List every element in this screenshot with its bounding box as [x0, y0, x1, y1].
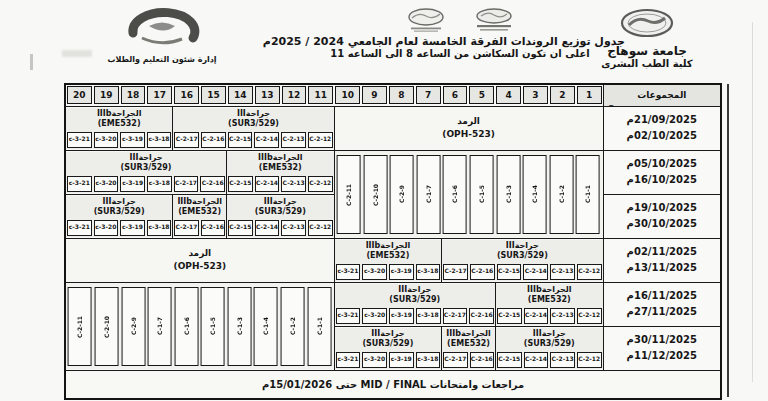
date-from: 16/11/2025م	[604, 288, 721, 304]
group-code: C-2-12	[577, 264, 602, 280]
course-title: جراحةIII	[237, 109, 270, 119]
table-header-row: المجموعات 123456789101112131415161718192…	[65, 84, 721, 106]
group-code: C-2-16	[201, 132, 226, 148]
course-title: جراحةIII	[533, 329, 566, 339]
group-code: C-2-12	[577, 308, 602, 324]
exams-note-cell: مراجعات وامتحانات MID / FINAL حتى 15/01/…	[65, 370, 721, 399]
group-number: 14	[228, 86, 253, 104]
date-from: 02/11/2025م	[604, 244, 721, 260]
exams-row: مراجعات وامتحانات MID / FINAL حتى 15/01/…	[65, 370, 721, 399]
group-number: 15	[201, 86, 226, 104]
accreditation-logos	[295, 8, 625, 33]
ophthalmology-block: الرمد (OPH-523)	[65, 238, 334, 282]
group-number: 6	[443, 86, 468, 104]
group-number: 10	[335, 86, 360, 104]
group-number: 11	[308, 86, 333, 104]
groups-header-cell: المجموعات	[603, 84, 721, 106]
clinic-code: C-1-7	[417, 155, 441, 234]
group-codes-strip: C-2-12C-2-13C-2-14C-2-15	[227, 219, 334, 237]
group-code: c-3-21	[336, 352, 361, 368]
schedule-row-2: 05/10/2025م 16/10/2025م C-1-1C-1-2C-1-4C…	[65, 150, 721, 194]
date-from: 30/11/2025م	[604, 332, 721, 348]
course-code: (EME532)	[528, 295, 571, 305]
clinic-code: C-2-9	[122, 287, 146, 366]
group-codes-strip: c-3-18c-3-19c-3-20c-3-21	[66, 131, 172, 149]
group-code: C-2-14	[254, 132, 279, 148]
group-code: c-3-18	[147, 176, 172, 192]
group-code: C-2-16	[469, 308, 494, 324]
clinic-groups-block: C-1-1C-1-2C-1-4C-1-3C-1-5C-1-6C-1-7C-2-9…	[334, 150, 603, 238]
course-code: (OPH-523)	[174, 260, 227, 273]
group-code: c-3-19	[389, 264, 414, 280]
accreditation-emblem-icon	[473, 8, 515, 33]
department-name: إدارة شئون التعليم والطلاب	[92, 55, 232, 64]
date-from: 21/09/2025م	[604, 112, 721, 128]
group-code: C-2-15	[497, 308, 522, 324]
scan-edge-line	[752, 22, 753, 382]
course-title: الرمد	[457, 115, 480, 128]
course-code: (SUR3/529)	[121, 163, 172, 173]
surgery-block: جراحةIII (SUR3/529) C-2-16C-2-17c-3-18c-…	[65, 150, 227, 194]
group-code: C-2-17	[174, 132, 199, 148]
group-code: c-3-18	[147, 132, 172, 148]
group-code: c-3-18	[416, 308, 441, 324]
group-code: c-3-20	[94, 132, 119, 148]
course-title: جراحةIII	[371, 329, 404, 339]
date-range-cell: 05/10/2025م 16/10/2025م	[603, 150, 721, 194]
group-code: C-2-14	[523, 264, 548, 280]
group-numbers-strip: 1234567891011121314151617181920	[66, 85, 603, 105]
group-codes-strip: C-2-12C-2-13C-2-14C-2-15	[227, 175, 334, 193]
group-code: c-3-21	[67, 220, 92, 236]
group-code: C-2-16	[470, 352, 494, 368]
group-code: C-2-12	[308, 220, 333, 236]
group-code: c-3-18	[416, 352, 441, 368]
group-codes-strip: C-2-16C-2-17c-3-18c-3-19c-3-20c-3-21	[335, 307, 495, 325]
clinic-codes-strip: C-1-1C-1-2C-1-4C-1-3C-1-5C-1-6C-1-7C-2-9…	[66, 283, 334, 369]
group-number: 8	[389, 86, 414, 104]
group-code: C-2-14	[524, 352, 549, 368]
clinic-code: C-1-1	[308, 287, 332, 366]
date-range-cell: 19/10/2025م 30/10/2025م	[603, 194, 721, 238]
group-code: c-3-21	[67, 176, 92, 192]
surgery-block: جراحةIII (SUR3/529) C-2-16C-2-17c-3-18c-…	[334, 282, 495, 326]
course-code: (SUR3/529)	[497, 251, 548, 261]
date-to: 11/12/2025م	[604, 348, 721, 364]
surgery-b-block: الجراحةIIIb (EME532) C-2-16C-2-17	[173, 194, 227, 238]
group-number: 13	[255, 86, 280, 104]
course-title: الرمد	[188, 247, 211, 260]
clinic-code: C-2-11	[337, 155, 361, 234]
group-codes-strip: C-2-12C-2-13C-2-14C-2-15	[496, 307, 603, 325]
group-number: 18	[121, 86, 146, 104]
group-code: c-3-20	[362, 352, 387, 368]
date-to: 13/11/2025م	[604, 260, 721, 276]
course-title: جراحةIII	[398, 285, 431, 295]
group-code: c-3-21	[336, 308, 361, 324]
group-code: C-2-15	[228, 176, 253, 192]
group-code: c-3-18	[147, 220, 172, 236]
group-code: C-2-15	[228, 220, 253, 236]
scanned-schedule-page: - جامعة سوهاج كلية الطب البشرى	[0, 0, 768, 401]
date-to: 16/10/2025م	[604, 172, 721, 188]
clinic-codes-strip: C-1-1C-1-2C-1-4C-1-3C-1-5C-1-6C-1-7C-2-9…	[335, 151, 603, 237]
group-number: 2	[550, 86, 575, 104]
sohag-university-logo-icon	[620, 8, 674, 38]
group-number: 3	[523, 86, 548, 104]
surgery-block: جراحةIII (SUR3/529) C-2-12C-2-13C-2-14C-…	[227, 194, 335, 238]
group-codes-strip: C-2-12C-2-13C-2-14C-2-15	[496, 351, 603, 369]
clinic-code: C-2-9	[390, 155, 414, 234]
group-codes-strip: C-2-12C-2-13C-2-14C-2-15C-2-16C-2-17	[173, 131, 333, 149]
group-code: c-3-19	[120, 176, 145, 192]
group-number: 20	[67, 86, 92, 104]
group-code: C-2-13	[281, 132, 306, 148]
group-code: C-2-13	[550, 352, 575, 368]
clinic-code: C-1-6	[443, 155, 467, 234]
clinic-groups-block: C-1-1C-1-2C-1-4C-1-3C-1-5C-1-6C-1-7C-2-9…	[65, 282, 334, 370]
course-code: (EME532)	[259, 163, 302, 173]
course-title: جراحةIII	[506, 241, 539, 251]
clinic-code: C-1-3	[497, 155, 521, 234]
date-to: 02/10/2025م	[604, 128, 721, 144]
group-code: C-2-16	[470, 264, 495, 280]
group-code: C-2-12	[308, 176, 333, 192]
date-to: 30/10/2025م	[604, 216, 721, 232]
course-code: (SUR3/529)	[255, 207, 306, 217]
table-double-border-line	[727, 84, 729, 397]
scan-edge-mark	[30, 54, 33, 70]
group-code: C-2-14	[255, 220, 280, 236]
date-range-cell: 30/11/2025م 11/12/2025م	[603, 326, 721, 370]
surgery-block: جراحةIII (SUR3/529) C-2-12C-2-13C-2-14C-…	[173, 106, 334, 150]
course-code: (SUR3/529)	[228, 119, 279, 129]
course-title: الجراحةIIIb	[527, 285, 572, 295]
group-code: C-2-14	[255, 176, 280, 192]
rotation-schedule-table: المجموعات 123456789101112131415161718192…	[64, 83, 722, 400]
course-title: الجراحةIIIb	[97, 109, 142, 119]
group-codes-strip: C-2-16C-2-17	[173, 219, 226, 237]
group-code: C-2-17	[443, 352, 467, 368]
group-code: c-3-19	[120, 132, 145, 148]
course-title: جراحةIII	[264, 197, 297, 207]
date-to: 27/11/2025م	[604, 304, 721, 320]
schedule-row-5: 16/11/2025م 27/11/2025م الجراحةIIIb (EME…	[65, 282, 721, 326]
group-codes-strip: C-2-12C-2-13C-2-14C-2-15C-2-16C-2-17	[442, 263, 602, 281]
group-number: 7	[416, 86, 441, 104]
group-number: 12	[282, 86, 307, 104]
department-header: إدارة شئون التعليم والطلاب	[92, 4, 232, 64]
course-code: (EME532)	[366, 251, 409, 261]
course-title: جراحةIII	[130, 153, 163, 163]
schedule-title: جدول توزيع الروندات الفرقة الخامسة لعام …	[295, 35, 625, 48]
group-code: C-2-12	[308, 132, 333, 148]
course-code: (SUR3/529)	[362, 339, 413, 349]
scan-smudge	[62, 50, 92, 57]
ophthalmology-block: الرمد (OPH-523)	[334, 106, 603, 150]
clinic-code: C-1-4	[254, 287, 278, 366]
clinic-code: C-1-1	[576, 155, 600, 234]
group-number: 5	[469, 86, 494, 104]
group-code: C-2-12	[577, 352, 602, 368]
group-code: c-3-21	[336, 264, 361, 280]
group-code: c-3-21	[67, 132, 92, 148]
clinic-code: C-2-11	[68, 287, 92, 366]
course-title: الجراحةIIIb	[366, 241, 411, 251]
group-code: C-2-15	[497, 264, 522, 280]
group-code: c-3-18	[416, 264, 441, 280]
group-codes-strip: c-3-18c-3-19c-3-20c-3-21	[66, 219, 172, 237]
clinic-code: C-2-10	[95, 287, 119, 366]
date-from: 05/10/2025م	[604, 156, 721, 172]
surgery-block: جراحةIII (SUR3/529) c-3-18c-3-19c-3-20c-…	[334, 326, 442, 370]
clinic-code: C-1-6	[175, 287, 199, 366]
student-affairs-emblem-icon	[118, 4, 206, 50]
group-code: C-2-14	[524, 308, 549, 324]
clinic-code: C-1-5	[201, 287, 225, 366]
group-code: C-2-13	[550, 264, 575, 280]
group-code: c-3-20	[94, 220, 119, 236]
date-range-cell: 02/11/2025م 13/11/2025م	[603, 238, 721, 282]
group-code: c-3-19	[389, 352, 414, 368]
clinic-code: C-1-7	[148, 287, 172, 366]
group-number: 1	[577, 86, 602, 104]
clinic-code: C-1-3	[228, 287, 252, 366]
group-code: C-2-17	[443, 308, 468, 324]
group-code: C-2-15	[228, 132, 253, 148]
surgery-block: جراحةIII (SUR3/529) C-2-12C-2-13C-2-14C-…	[442, 238, 603, 282]
group-code: C-2-13	[550, 308, 575, 324]
group-codes-strip: c-3-18c-3-19c-3-20c-3-21	[335, 263, 442, 281]
stray-dash-mark: -	[609, 98, 614, 113]
course-title: الجراحةIIIb	[258, 153, 303, 163]
schedule-row-4: 02/11/2025م 13/11/2025م جراحةIII (SUR3/5…	[65, 238, 721, 282]
group-code: c-3-19	[389, 308, 414, 324]
group-numbers-cell: 1234567891011121314151617181920	[65, 84, 603, 106]
group-number: 16	[174, 86, 199, 104]
group-number: 9	[362, 86, 387, 104]
course-code: (EME532)	[178, 207, 221, 217]
group-codes-strip: c-3-18c-3-19c-3-20c-3-21	[335, 351, 442, 369]
surgery-b-block: الجراحةIIIb (EME532) c-3-18c-3-19c-3-20c…	[65, 106, 173, 150]
surgery-block: جراحةIII (SUR3/529) c-3-18c-3-19c-3-20c-…	[65, 194, 173, 238]
surgery-block: جراحةIII (SUR3/529) C-2-12C-2-13C-2-14C-…	[495, 326, 603, 370]
schedule-subtitle: اعلى ان تكون السكاشن من الساعه 8 الى الس…	[295, 48, 625, 59]
surgery-b-block: الجراحةIIIb (EME532) C-2-16C-2-17	[442, 326, 496, 370]
clinic-code: C-1-5	[470, 155, 494, 234]
schedule-row-1: 21/09/2025م 02/10/2025م الرمد (OPH-523) …	[65, 106, 721, 150]
clinic-code: C-1-2	[550, 155, 574, 234]
course-title: الجراحةIIIb	[177, 197, 222, 207]
course-code: (SUR3/529)	[524, 339, 575, 349]
group-code: C-2-17	[174, 176, 199, 192]
group-code: C-2-13	[281, 176, 306, 192]
group-code: C-2-17	[443, 264, 468, 280]
group-number: 19	[94, 86, 119, 104]
association-emblem-icon	[405, 8, 447, 33]
surgery-b-block: الجراحةIIIb (EME532) C-2-12C-2-13C-2-14C…	[495, 282, 603, 326]
group-code: c-3-19	[120, 220, 145, 236]
group-codes-strip: C-2-16C-2-17	[442, 351, 495, 369]
clinic-code: C-1-4	[523, 155, 547, 234]
group-code: C-2-17	[174, 220, 198, 236]
surgery-b-block: الجراحةIIIb (EME532) C-2-12C-2-13C-2-14C…	[227, 150, 335, 194]
course-title: جراحةIII	[103, 197, 136, 207]
group-code: C-2-16	[200, 176, 225, 192]
date-range-cell: 21/09/2025م 02/10/2025م	[603, 106, 721, 150]
faculty-name: كلية الطب البشرى	[582, 58, 712, 69]
clinic-code: C-1-2	[281, 287, 305, 366]
course-code: (OPH-523)	[442, 128, 495, 141]
group-code: C-2-16	[201, 220, 225, 236]
document-title-block: جدول توزيع الروندات الفرقة الخامسة لعام …	[295, 8, 625, 59]
group-codes-strip: C-2-16C-2-17c-3-18c-3-19c-3-20c-3-21	[66, 175, 226, 193]
date-range-cell: 16/11/2025م 27/11/2025م	[603, 282, 721, 326]
clinic-code: C-2-10	[364, 155, 388, 234]
course-code: (EME532)	[447, 339, 490, 349]
group-number: 4	[496, 86, 521, 104]
course-code: (SUR3/529)	[94, 207, 145, 217]
course-code: (EME532)	[98, 119, 141, 129]
group-code: c-3-20	[362, 308, 387, 324]
group-number: 17	[147, 86, 172, 104]
date-from: 19/10/2025م	[604, 200, 721, 216]
group-code: C-2-13	[281, 220, 306, 236]
group-code: C-2-15	[497, 352, 522, 368]
group-code: c-3-20	[94, 176, 119, 192]
group-code: c-3-20	[362, 264, 387, 280]
course-title: الجراحةIIIb	[446, 329, 491, 339]
course-code: (SUR3/529)	[389, 295, 440, 305]
surgery-b-block: الجراحةIIIb (EME532) c-3-18c-3-19c-3-20c…	[334, 238, 442, 282]
